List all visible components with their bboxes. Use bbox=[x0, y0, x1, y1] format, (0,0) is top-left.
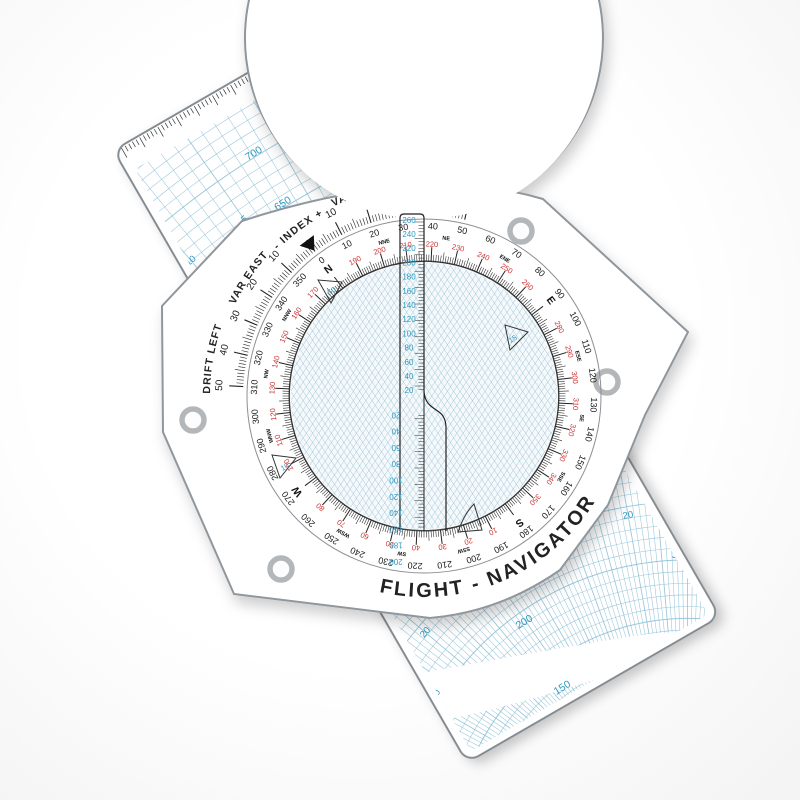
cursor-upper-scale-number: 40 bbox=[405, 372, 414, 381]
compass-heading-number: 220 bbox=[407, 560, 423, 571]
compass-heading-number: 310 bbox=[249, 379, 260, 395]
cursor-lower-scale-number: 80 bbox=[391, 459, 400, 468]
compass-heading-number: 130 bbox=[588, 397, 599, 413]
cursor-lower-scale-number: 20 bbox=[391, 410, 400, 419]
grommet bbox=[182, 409, 204, 431]
cursor-upper-scale-number: 220 bbox=[402, 244, 416, 253]
reciprocal-heading-number: 130 bbox=[267, 382, 277, 395]
drift-line-label: 20 bbox=[622, 509, 634, 522]
cursor-lower-scale-number: 60 bbox=[391, 443, 400, 452]
cursor-lower-scale-number: 40 bbox=[391, 427, 400, 436]
variation-scale-number: 50 bbox=[214, 379, 226, 391]
cursor-upper-scale-number: 60 bbox=[405, 358, 414, 367]
reciprocal-heading-number: 220 bbox=[425, 239, 438, 249]
flight-navigator-photo: HIGH SPEED150200350450500650700750551020… bbox=[0, 0, 800, 800]
compass-heading-number: 300 bbox=[249, 409, 261, 425]
intercardinal-label: SE bbox=[577, 414, 584, 422]
grommet bbox=[510, 220, 532, 242]
grommet bbox=[270, 558, 292, 580]
cursor-upper-scale-number: 200 bbox=[402, 258, 416, 267]
cursor-upper-scale-number: 120 bbox=[402, 315, 416, 324]
reciprocal-heading-number: 120 bbox=[268, 408, 278, 422]
cursor-upper-scale-number: 260 bbox=[402, 216, 416, 225]
cursor-upper-scale-number: 20 bbox=[405, 386, 414, 395]
cursor-lower-scale-number: 180 bbox=[389, 541, 403, 550]
cursor-lower-scale-number: 140 bbox=[389, 508, 403, 517]
cursor-upper-scale-number: 160 bbox=[402, 287, 416, 296]
reciprocal-heading-number: 40 bbox=[412, 543, 421, 552]
reciprocal-heading-number: 310 bbox=[571, 397, 581, 410]
cursor-lower-scale-number: 120 bbox=[389, 492, 403, 501]
intercardinal-label: NE bbox=[442, 236, 451, 243]
cursor-upper-scale-number: 80 bbox=[405, 344, 414, 353]
cursor-lower-scale-number: 160 bbox=[389, 524, 403, 533]
cursor-upper-scale-number: 140 bbox=[402, 301, 416, 310]
cursor-upper-scale-number: 240 bbox=[402, 230, 416, 239]
cursor-lower-scale-number: 100 bbox=[389, 476, 403, 485]
flight-computer: HIGH SPEED150200350450500650700750551020… bbox=[0, 0, 800, 800]
compass-heading-number: 210 bbox=[437, 559, 453, 571]
compass-heading-number: 40 bbox=[428, 221, 439, 232]
reciprocal-heading-number: 300 bbox=[570, 371, 580, 385]
compass-heading-number: 120 bbox=[587, 367, 599, 383]
cursor-lower-scale-number: 200 bbox=[389, 557, 403, 566]
cursor-upper-scale-number: 180 bbox=[402, 273, 416, 282]
reciprocal-heading-number: 30 bbox=[438, 542, 447, 552]
cursor-upper-scale-number: 100 bbox=[402, 329, 416, 338]
